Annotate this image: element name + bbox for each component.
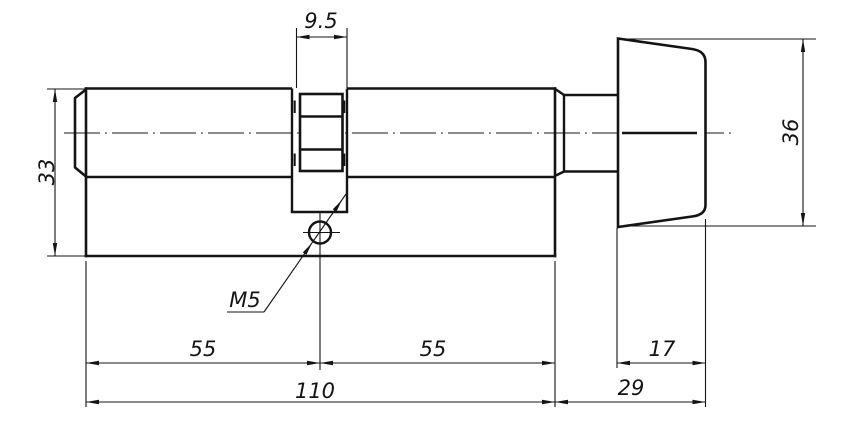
dim-label-thread-callout: M5 <box>215 288 275 312</box>
cam-body <box>300 94 343 171</box>
dim-label-overall-length: 110 <box>285 379 345 403</box>
dim-label-cam-width: 9.5 <box>291 9 351 33</box>
part-fills <box>86 39 706 257</box>
dim-label-body-height: 33 <box>35 142 57 202</box>
dim-label-left-section: 55 <box>178 337 228 361</box>
drawing-canvas: 9.5 33 36 M5 55 55 110 17 29 <box>0 0 850 425</box>
thumbturn-knob <box>618 39 706 228</box>
dim-label-knob-depth: 17 <box>637 337 687 361</box>
cylinder-drawing <box>0 0 850 425</box>
dim-label-knob-height: 36 <box>779 102 801 162</box>
dim-label-knob-offset: 29 <box>606 376 656 400</box>
dim-label-right-section: 55 <box>408 337 458 361</box>
